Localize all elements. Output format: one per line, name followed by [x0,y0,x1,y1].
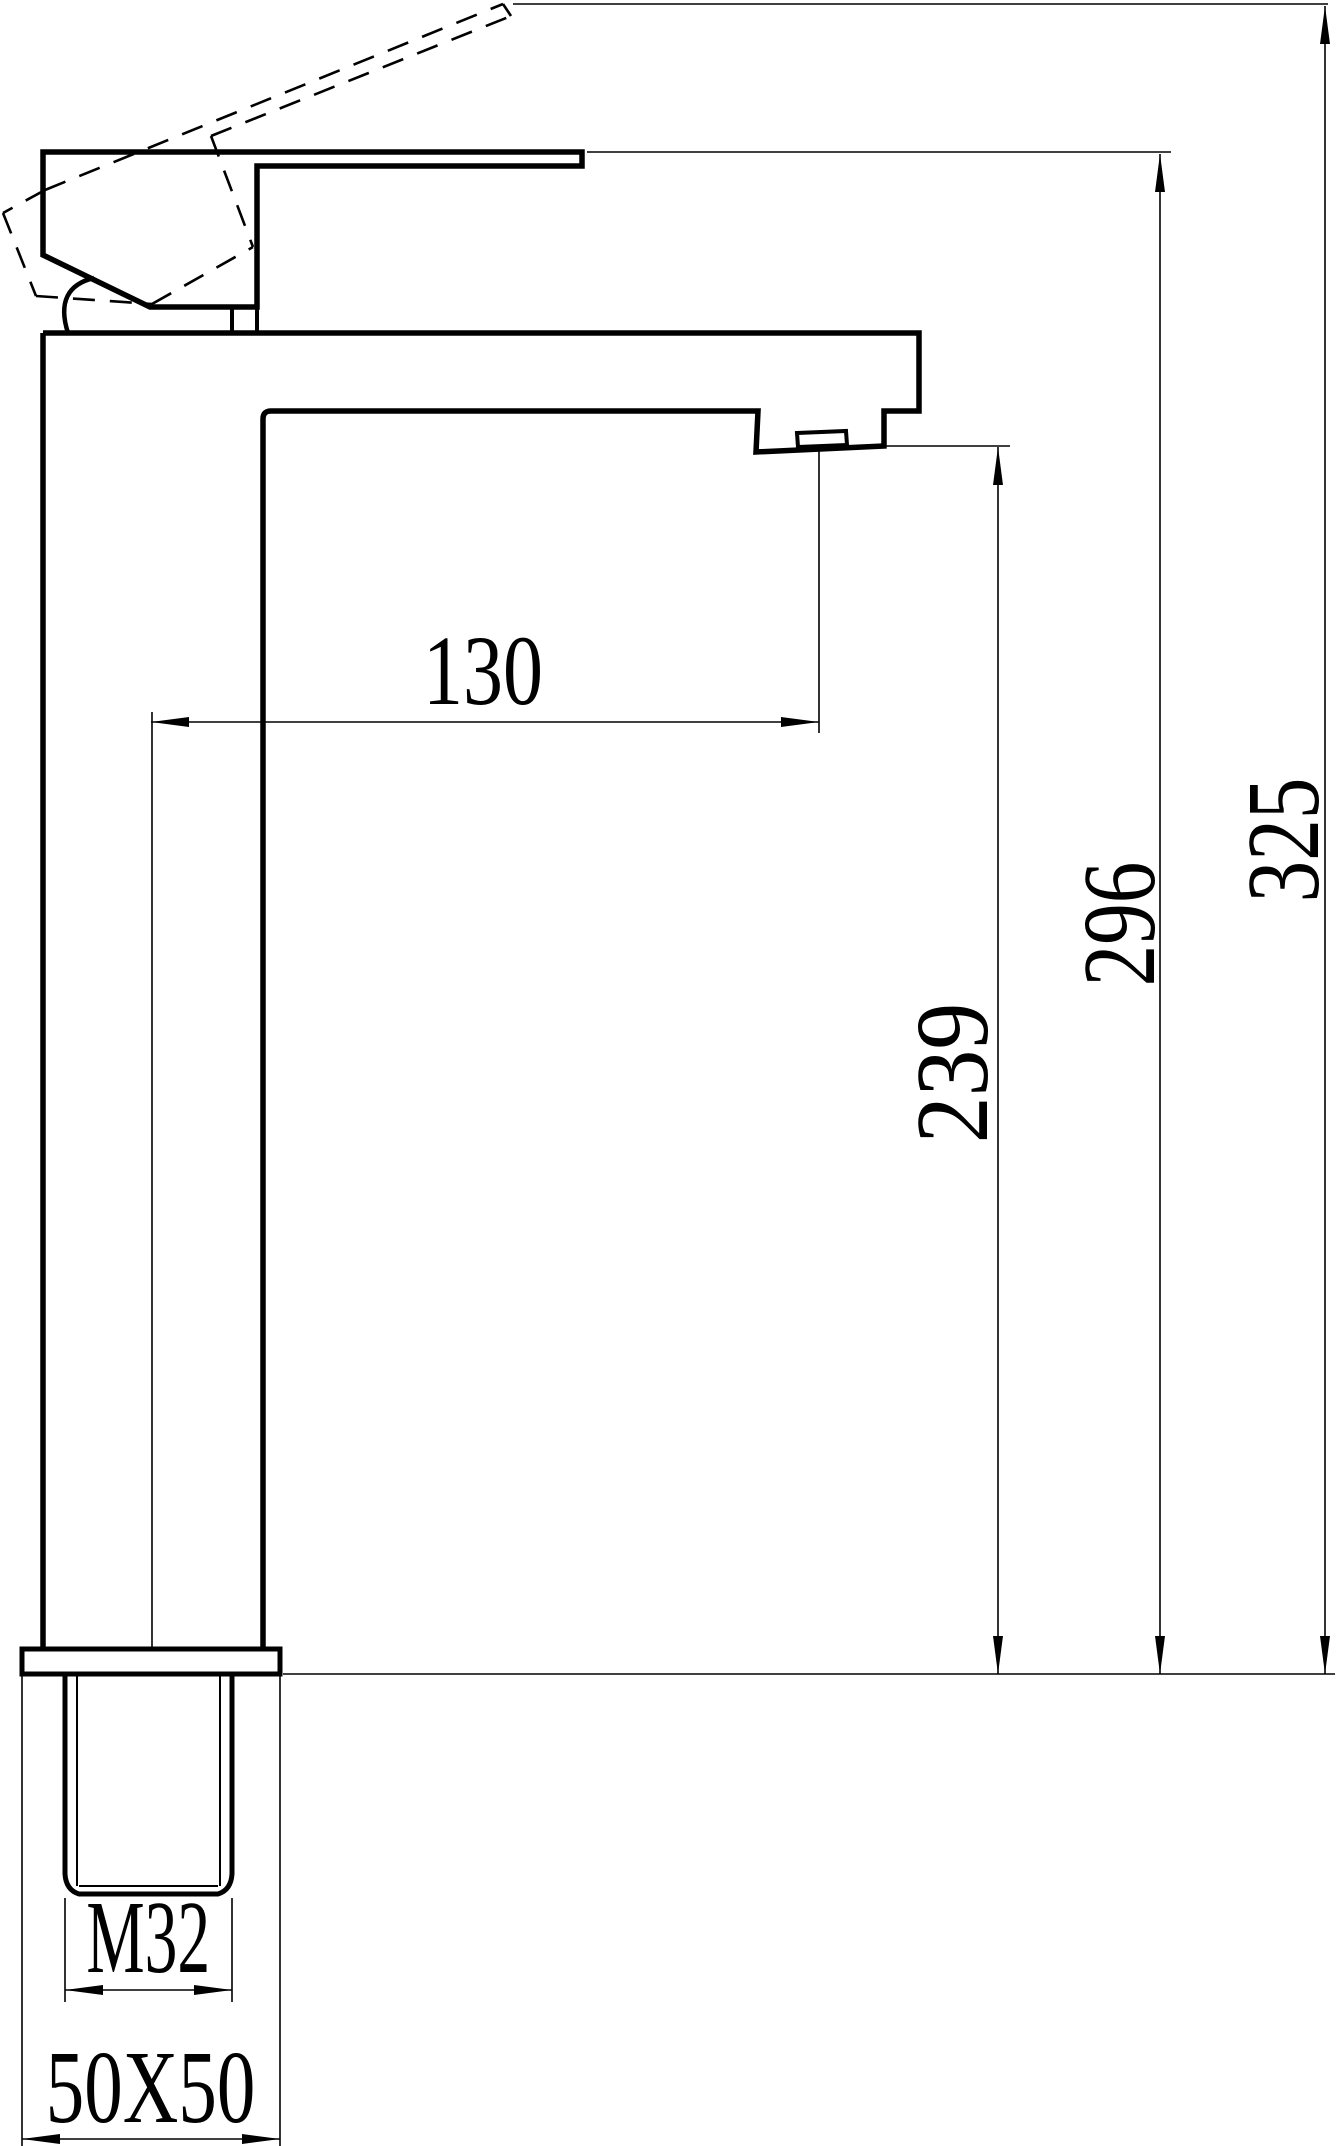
dimension-label-shank-thread: M32 [38,1886,258,1990]
handle-lever-outline [43,152,582,307]
dashed-block-left [3,213,36,296]
faucet-line-drawing [0,0,1338,2146]
dashed-block-top [3,190,45,213]
arrow-325-top [1320,6,1330,44]
dimension-value: 239 [901,1003,1005,1143]
dashed-lever-lower-edge [211,16,511,136]
dimension-label-spout-outlet-height: 239 [901,963,1005,1183]
shank-outer [65,1674,232,1894]
dimension-value: 325 [1232,778,1336,903]
arrow-130-right [781,717,819,727]
dashed-block-bottom-right [152,247,253,304]
dashed-lever-upper-edge [45,4,503,190]
dimension-arrowheads [22,6,1330,2144]
arrow-296-bottom [1155,1636,1165,1674]
arrow-296-top [1155,154,1165,192]
dimension-lines [22,6,1325,2139]
spout-head-and-column-right [43,333,919,1649]
dimension-label-spout-reach: 130 [363,618,603,723]
arrow-325-bottom [1320,1636,1330,1674]
dimension-label-base-plate-size: 50X50 [11,2036,291,2140]
dimension-value: 296 [1068,862,1172,987]
extension-lines [22,4,1335,2146]
arrow-239-top [993,447,1003,485]
dimension-value: 130 [423,621,543,721]
arrow-130-left [151,717,189,727]
dimension-value: 50X50 [46,2036,256,2140]
dimension-value: M32 [86,1886,210,1990]
dashed-lever-tip [503,4,511,16]
aerator-insert [797,431,847,447]
faucet-solid-outline [22,152,919,1894]
dimension-label-lever-top-height: 296 [1068,814,1172,1034]
pivot-dome-arc [64,278,94,333]
technical-drawing-page: 130 239 296 325 M32 50X50 [0,0,1338,2146]
base-plate [22,1649,280,1674]
arrow-239-bottom [993,1636,1003,1674]
dimension-label-max-height: 325 [1232,730,1336,950]
